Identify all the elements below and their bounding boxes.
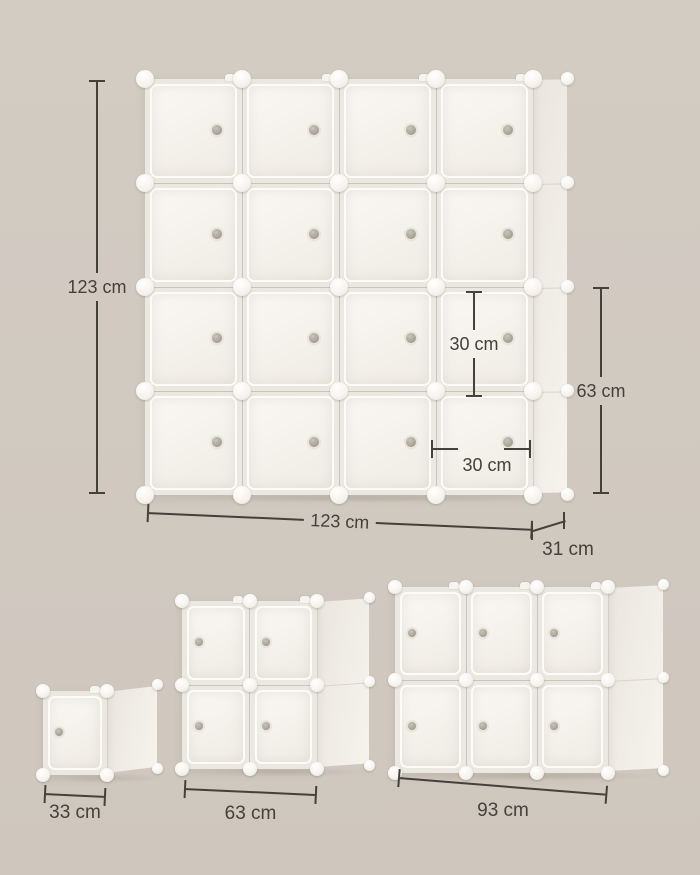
connector-ball	[175, 594, 189, 608]
front-face	[43, 691, 107, 775]
door-knob	[212, 333, 222, 343]
door-knob	[212, 437, 222, 447]
connector-ball	[330, 382, 348, 400]
connector-ball	[601, 580, 615, 594]
cube-door	[187, 606, 245, 680]
cube-door	[441, 84, 528, 178]
connector-ball	[330, 174, 348, 192]
door-knob	[406, 125, 416, 135]
connector-ball	[427, 70, 445, 88]
side-panel	[317, 598, 369, 767]
connector-ball	[36, 684, 50, 698]
dimension-label: 30 cm	[438, 454, 536, 476]
connector-ball	[136, 278, 154, 296]
side-panel	[107, 686, 157, 773]
side-seam	[608, 678, 663, 682]
dimension-line	[600, 289, 602, 377]
connector-ball	[601, 673, 615, 687]
door-knob	[309, 125, 319, 135]
door-knob	[408, 722, 416, 730]
dimension-line	[473, 293, 475, 330]
dimension-line	[433, 448, 458, 450]
cube-door	[542, 592, 603, 675]
cube-organizer-2x2	[182, 601, 379, 783]
height-dimension-123: 123 cm	[88, 80, 106, 494]
door-knob	[55, 728, 63, 736]
cube-door	[187, 690, 245, 764]
horizontal-seam	[395, 680, 608, 681]
connector-ball	[330, 486, 348, 504]
cube-organizer-1x1	[43, 691, 167, 789]
connector-ball	[364, 592, 375, 603]
cube-door	[400, 685, 461, 768]
cube-door	[344, 188, 431, 282]
connector-ball	[459, 580, 473, 594]
connector-ball	[524, 174, 542, 192]
connector-ball	[658, 579, 669, 590]
connector-ball	[459, 673, 473, 687]
door-knob	[503, 125, 513, 135]
dimension-line	[186, 788, 315, 796]
cube-door	[150, 84, 237, 178]
connector-ball	[243, 678, 257, 692]
connector-ball	[100, 768, 114, 782]
door-knob	[195, 638, 203, 646]
door-knob	[479, 722, 487, 730]
connector-ball	[524, 70, 542, 88]
connector-ball	[658, 672, 669, 683]
connector-ball	[136, 70, 154, 88]
connector-ball	[427, 278, 445, 296]
connector-ball	[427, 486, 445, 504]
connector-ball	[388, 673, 402, 687]
cube-door	[247, 188, 334, 282]
connector-ball	[152, 679, 163, 690]
connector-ball	[530, 673, 544, 687]
connector-ball	[330, 278, 348, 296]
cube-door	[344, 396, 431, 490]
door-knob	[406, 229, 416, 239]
connector-ball	[136, 382, 154, 400]
cube-door	[471, 685, 532, 768]
cube-door	[344, 84, 431, 178]
connector-ball	[152, 763, 163, 774]
cube-door	[255, 606, 313, 680]
connector-ball	[233, 382, 251, 400]
door-knob	[479, 629, 487, 637]
cube-door	[471, 592, 532, 675]
dimension-line	[96, 82, 98, 273]
connector-ball	[175, 762, 189, 776]
connector-ball	[233, 278, 251, 296]
connector-ball	[561, 488, 574, 501]
connector-ball	[233, 70, 251, 88]
two-row-height-dimension-63: 63 cm	[592, 287, 610, 494]
connector-ball	[427, 382, 445, 400]
connector-ball	[658, 765, 669, 776]
cube-door	[247, 84, 334, 178]
width-dimension-123: 123 cm	[147, 504, 533, 539]
door-knob	[195, 722, 203, 730]
dimension-label: 123 cm	[304, 506, 376, 537]
connector-ball	[310, 762, 324, 776]
connector-ball	[524, 486, 542, 504]
connector-ball	[530, 766, 544, 780]
connector-ball	[100, 684, 114, 698]
door-knob	[309, 229, 319, 239]
side-panel	[608, 585, 663, 771]
dimension-cap	[314, 786, 317, 804]
connector-ball	[136, 174, 154, 192]
door-knob	[309, 437, 319, 447]
cube-door	[441, 188, 528, 282]
dimension-cap	[466, 395, 482, 397]
connector-ball	[561, 72, 574, 85]
dimension-line	[149, 512, 304, 521]
door-knob	[309, 333, 319, 343]
connector-ball	[364, 676, 375, 687]
cube-door	[247, 292, 334, 386]
cube-door	[150, 188, 237, 282]
cube-door	[150, 396, 237, 490]
connector-ball	[524, 278, 542, 296]
door-knob	[406, 333, 416, 343]
door-knob	[262, 638, 270, 646]
door-knob	[503, 229, 513, 239]
connector-ball	[310, 678, 324, 692]
connector-ball	[330, 70, 348, 88]
dimension-label: 63 cm	[184, 803, 317, 825]
cube-door	[247, 396, 334, 490]
connector-ball	[36, 768, 50, 782]
dimension-line	[96, 301, 98, 492]
dimension-line	[375, 522, 530, 531]
door-knob	[550, 722, 558, 730]
dimension-line	[600, 405, 602, 493]
door-knob	[406, 437, 416, 447]
dimension-label: 123 cm	[61, 273, 132, 301]
dimension-cap	[89, 492, 105, 494]
cube-height-dimension-30: 30 cm	[465, 291, 483, 397]
cube-door	[542, 685, 603, 768]
door-knob	[262, 722, 270, 730]
cube-door	[344, 292, 431, 386]
connector-ball	[530, 580, 544, 594]
connector-ball	[175, 678, 189, 692]
product-dimension-diagram: 123 cm 63 cm 30 cm 30 cm 123 cm 3	[0, 0, 700, 875]
connector-ball	[243, 762, 257, 776]
top-clip	[591, 582, 601, 589]
depth-dimension-line	[533, 520, 566, 532]
cube-door	[255, 690, 313, 764]
dimension-label: 33 cm	[34, 802, 116, 824]
top-clip	[300, 596, 310, 603]
dimension-label: 30 cm	[443, 330, 504, 358]
dimension-cap	[593, 492, 609, 494]
front-face	[395, 587, 608, 773]
connector-ball	[243, 594, 257, 608]
connector-ball	[561, 280, 574, 293]
connector-ball	[233, 174, 251, 192]
side-seam	[317, 682, 369, 687]
width-dimension-63	[184, 780, 318, 804]
connector-ball	[136, 486, 154, 504]
connector-ball	[388, 580, 402, 594]
connector-ball	[561, 176, 574, 189]
dimension-label: 63 cm	[570, 377, 631, 405]
dimension-line	[473, 358, 475, 395]
connector-ball	[427, 174, 445, 192]
cube-door	[400, 592, 461, 675]
connector-ball	[524, 382, 542, 400]
top-clip	[520, 582, 530, 589]
connector-ball	[233, 486, 251, 504]
top-clip	[449, 582, 459, 589]
top-clip	[90, 686, 100, 693]
dimension-line	[46, 793, 104, 798]
cube-door	[150, 292, 237, 386]
dimension-line	[504, 448, 529, 450]
connector-ball	[364, 760, 375, 771]
cube-organizer-3x2	[395, 587, 673, 787]
connector-ball	[601, 766, 615, 780]
dimension-label: 93 cm	[398, 800, 608, 822]
door-knob	[212, 229, 222, 239]
dimension-label: 31 cm	[537, 539, 599, 561]
door-knob	[550, 629, 558, 637]
connector-ball	[310, 594, 324, 608]
cube-door	[48, 696, 102, 770]
dimension-gap	[458, 448, 504, 450]
door-knob	[212, 125, 222, 135]
top-clip	[233, 596, 243, 603]
door-knob	[408, 629, 416, 637]
